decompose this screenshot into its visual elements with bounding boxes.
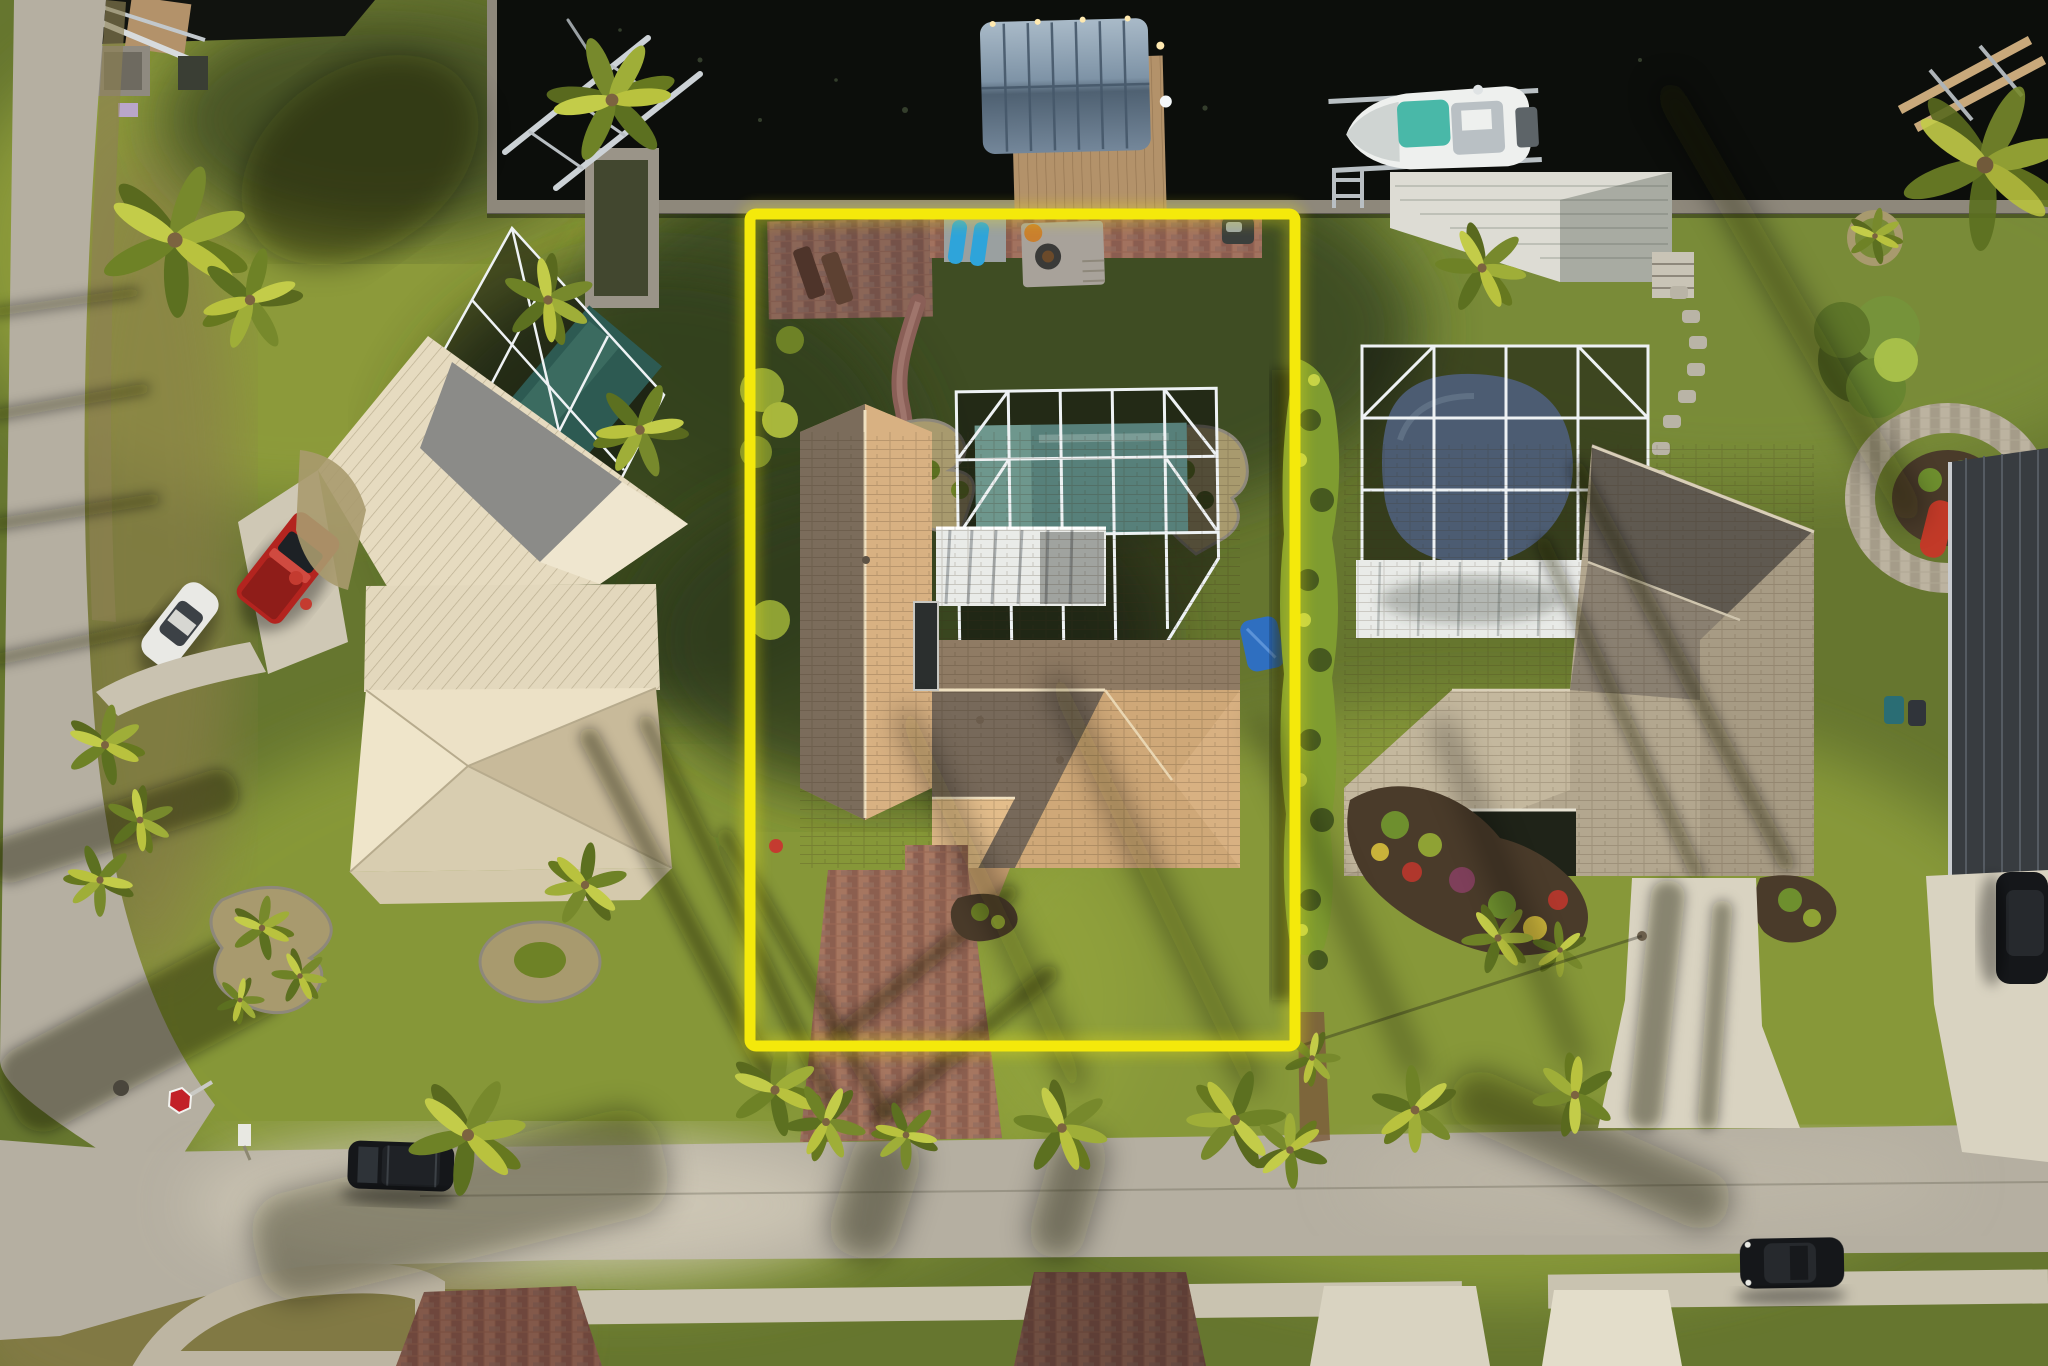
fire-pit-pad xyxy=(1021,221,1105,288)
canal-water xyxy=(488,0,2048,208)
trash-bin xyxy=(1884,696,1904,724)
concrete-apron-1 xyxy=(1310,1286,1490,1366)
red-flower-bush xyxy=(769,839,783,853)
trash-bin xyxy=(1908,700,1926,726)
black-car xyxy=(1734,1237,1847,1306)
paver-patio xyxy=(767,219,933,320)
concrete-apron-2 xyxy=(1542,1290,1682,1366)
seawall-west xyxy=(487,0,497,214)
far-right-house-roof xyxy=(1950,448,2048,882)
subject-house-roof xyxy=(800,404,1240,906)
scene-svg xyxy=(0,0,2048,1366)
manhole xyxy=(113,1080,129,1096)
solar-skylight xyxy=(914,602,938,690)
far-right-suv xyxy=(1978,872,2048,986)
purple-mat xyxy=(118,103,138,117)
aerial-photo xyxy=(0,0,2048,1366)
boat-bow-cover xyxy=(1397,99,1451,148)
outboard-motor xyxy=(1515,107,1539,148)
